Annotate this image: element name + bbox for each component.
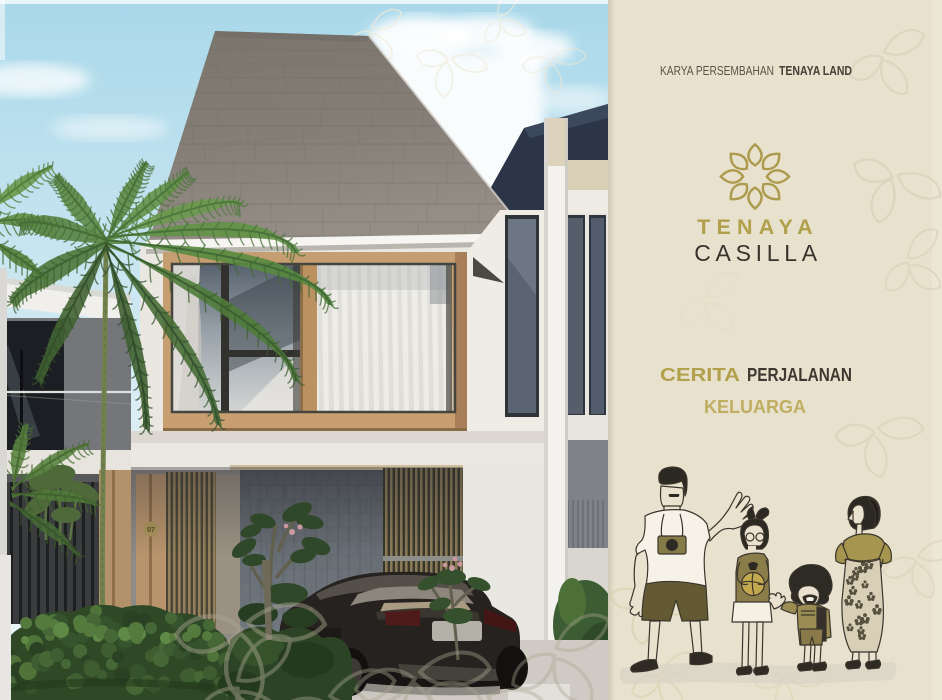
svg-text:TENAYA: TENAYA	[697, 215, 819, 239]
svg-text:TENAYA LAND: TENAYA LAND	[779, 64, 852, 78]
svg-text:CASILLA: CASILLA	[694, 240, 822, 266]
svg-text:CERITA: CERITA	[660, 364, 740, 385]
svg-text:KELUARGA: KELUARGA	[704, 396, 806, 417]
svg-text:KARYA PERSEMBAHAN: KARYA PERSEMBAHAN	[660, 64, 774, 78]
svg-text:PERJALANAN: PERJALANAN	[747, 364, 852, 385]
